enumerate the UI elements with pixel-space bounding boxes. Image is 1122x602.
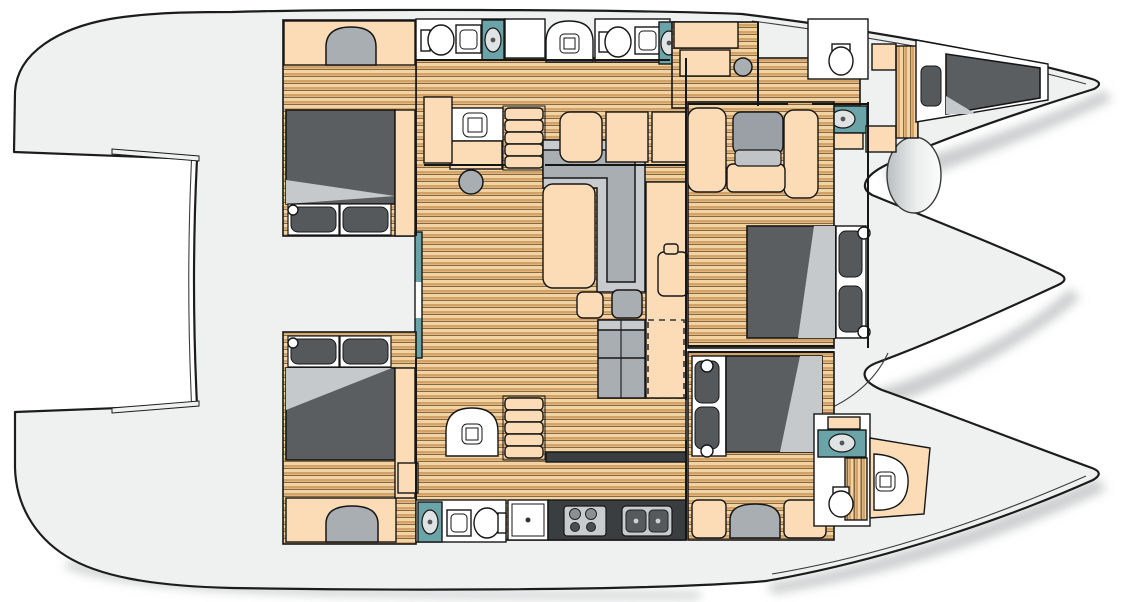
toilet-tank <box>498 513 506 533</box>
port-aft-cabin <box>283 20 416 236</box>
pillow <box>343 339 388 364</box>
toilet <box>474 508 500 538</box>
port-forward-cabin <box>672 22 758 108</box>
starboard-aft-bathroom <box>416 500 506 542</box>
shower-stall <box>546 21 593 62</box>
transom-notch-line <box>189 160 192 403</box>
ottoman <box>612 290 642 318</box>
bench-seat <box>326 506 378 542</box>
porthole <box>701 445 713 457</box>
side-cabinet <box>395 110 415 236</box>
pillow <box>921 66 941 106</box>
appliance <box>658 252 688 296</box>
bench-seat <box>326 27 376 65</box>
shelf <box>828 417 860 429</box>
settee <box>688 108 726 192</box>
stool <box>734 58 752 76</box>
stair-step <box>505 108 543 120</box>
stair-step <box>505 422 543 434</box>
pillow <box>695 407 719 449</box>
toilet <box>428 25 454 55</box>
starboard-mid-cabin <box>688 352 834 540</box>
stair-step <box>505 132 543 144</box>
counter-back <box>546 452 686 462</box>
counter <box>505 19 545 58</box>
stair-step <box>505 144 543 156</box>
pillow <box>839 286 862 332</box>
port-aft-bathroom <box>416 19 505 60</box>
pillow <box>343 207 388 232</box>
lounge-chair-seat <box>735 150 781 166</box>
stove-4-burner <box>564 506 606 536</box>
vanity-desk <box>680 50 730 76</box>
double-sink <box>622 506 672 536</box>
cabinet <box>692 500 726 538</box>
aft-bench <box>424 97 452 163</box>
bow-wood-strip <box>896 46 918 138</box>
coffee-table <box>543 184 595 288</box>
sliding-door-gap <box>416 282 421 318</box>
basin-drain <box>841 117 846 122</box>
catamaran-floor-plan: Catamaran yacht interior layout — top-vi… <box>0 0 1122 602</box>
stair-step <box>505 410 543 422</box>
forward-bench <box>606 112 648 162</box>
bench-seat <box>730 504 780 538</box>
cabinet <box>674 22 738 48</box>
bench-small <box>577 292 603 318</box>
settee-base <box>727 164 785 192</box>
porthole <box>701 360 713 372</box>
pillow <box>839 231 862 277</box>
floor-plan-canvas: Catamaran yacht interior layout — top-vi… <box>0 0 1122 602</box>
lounge-chair-back <box>733 112 783 154</box>
basin-drain <box>491 38 496 43</box>
toilet <box>829 47 853 75</box>
stair-step <box>505 156 543 168</box>
bow-cabinet <box>866 126 896 152</box>
porthole <box>288 338 298 348</box>
starboard-aft-cabin <box>283 332 418 544</box>
stair-step <box>505 446 543 458</box>
stool <box>459 170 483 194</box>
toilet <box>829 491 853 517</box>
basin-drain <box>428 520 433 525</box>
settee <box>784 110 818 198</box>
stair-step <box>505 120 543 132</box>
basin-drain <box>840 441 845 446</box>
stair-step <box>505 398 543 410</box>
shower-stall <box>446 408 498 456</box>
appliance-handle <box>664 244 678 254</box>
stair-step <box>505 434 543 446</box>
forward-bench <box>560 112 602 162</box>
companionway-stairs-starboard <box>503 396 545 460</box>
dishwasher-knob <box>526 518 531 523</box>
forward-bench <box>652 112 686 162</box>
companionway-stairs-port <box>503 106 545 170</box>
basin-drain <box>667 41 672 46</box>
toilet <box>605 27 631 57</box>
bow-cabinet <box>872 44 896 70</box>
galley <box>508 500 686 540</box>
porthole <box>288 205 298 215</box>
